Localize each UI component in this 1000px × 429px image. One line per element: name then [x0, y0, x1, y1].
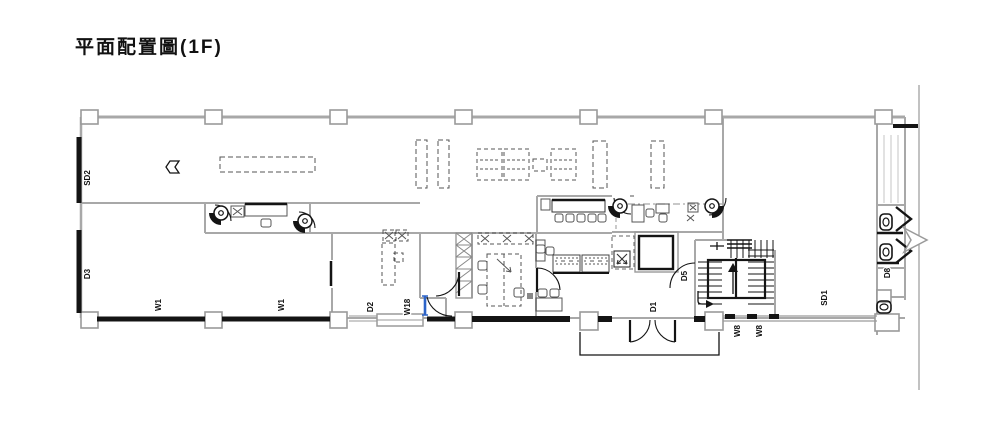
toilet-icon	[880, 244, 892, 260]
furniture	[166, 140, 698, 311]
structural-columns	[81, 110, 899, 331]
floor-plan-drawing: SD2 D3 W1 W1 D2 W18 D1 D5 W8 W8 SD1 D8	[0, 0, 1000, 429]
door-tag-icon	[209, 206, 228, 225]
interior-walls	[81, 118, 905, 318]
label-d2: D2	[366, 301, 375, 312]
door-tag-icon	[705, 199, 724, 218]
conference-table	[541, 199, 606, 222]
label-sd1: SD1	[820, 290, 829, 306]
door-tag-icon	[608, 199, 627, 218]
label-d8: D8	[883, 267, 892, 278]
label-w1-right: W1	[277, 298, 286, 311]
label-w8-right: W8	[755, 324, 764, 337]
floor-plan-page: 平面配置圖(1F)	[0, 0, 1000, 429]
label-d5: D5	[680, 270, 689, 281]
pantry-counter	[382, 230, 408, 285]
upper-office-desks	[632, 203, 698, 222]
entrance-vestibule	[580, 320, 719, 355]
office-cabinets	[478, 233, 533, 244]
office-desk-group	[478, 245, 545, 306]
label-w18: W18	[403, 298, 412, 315]
bench-seating	[553, 255, 609, 273]
elevator-icon	[612, 232, 678, 272]
label-w8-left: W8	[733, 324, 742, 337]
elevator-cross-arrows-icon	[614, 251, 630, 267]
staircase	[698, 240, 774, 308]
floor-box	[527, 293, 533, 299]
waiting-desks	[536, 240, 562, 311]
toilet-icon	[880, 214, 892, 230]
label-w1-left: W1	[154, 298, 163, 311]
stair-entry-arrow-icon	[698, 291, 714, 308]
reception-counter	[231, 204, 287, 227]
entrance-chevron-icon	[904, 228, 927, 252]
label-d3: D3	[83, 268, 92, 279]
label-d1: D1	[649, 301, 658, 312]
label-sd2: SD2	[83, 170, 92, 186]
nav-arrow-icon	[166, 161, 179, 173]
